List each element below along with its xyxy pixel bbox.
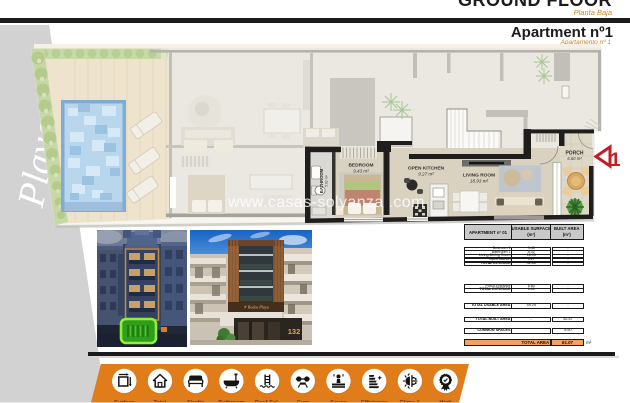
- svg-text:BATHROOM: BATHROOM: [319, 168, 324, 193]
- svg-text:6.60 m²: 6.60 m²: [567, 156, 582, 161]
- svg-text:18.93 m²: 18.93 m²: [470, 179, 489, 184]
- svg-text:1: 1: [610, 150, 621, 171]
- svg-text:132: 132: [288, 327, 301, 336]
- svg-text:5.02 m²: 5.02 m²: [325, 174, 329, 187]
- svg-text:www.casas-solyanza .com: www.casas-solyanza .com: [227, 194, 425, 211]
- svg-text:⚜ Rodas Playa: ⚜ Rodas Playa: [243, 305, 269, 310]
- svg-text:9.27 m²: 9.27 m²: [418, 172, 434, 177]
- svg-text:9.43 m²: 9.43 m²: [353, 169, 369, 174]
